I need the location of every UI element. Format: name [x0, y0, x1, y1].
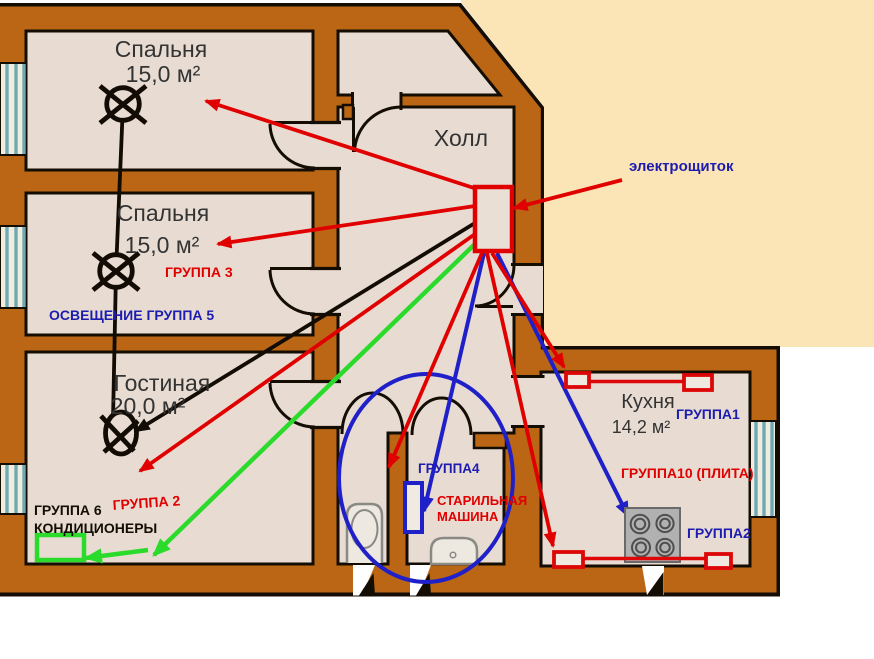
svg-text:Кухня: Кухня	[621, 391, 675, 413]
svg-text:СТАРИЛЬНАЯ: СТАРИЛЬНАЯ	[437, 493, 527, 508]
svg-text:20,0 м²: 20,0 м²	[111, 393, 186, 419]
svg-text:ГРУППА 6: ГРУППА 6	[34, 502, 102, 518]
svg-text:15,0 м²: 15,0 м²	[126, 61, 201, 87]
svg-text:14,2 м²: 14,2 м²	[612, 417, 670, 437]
svg-text:ГРУППА2: ГРУППА2	[687, 525, 751, 541]
svg-text:ГРУППА 3: ГРУППА 3	[165, 264, 233, 280]
svg-text:ОСВЕЩЕНИЕ ГРУППА 5: ОСВЕЩЕНИЕ ГРУППА 5	[49, 307, 214, 323]
svg-text:Спальня: Спальня	[117, 200, 209, 226]
svg-text:Спальня: Спальня	[115, 36, 207, 62]
svg-text:ГРУППА1: ГРУППА1	[676, 406, 740, 422]
svg-text:ГРУППА10 (ПЛИТА): ГРУППА10 (ПЛИТА)	[621, 465, 754, 481]
svg-text:КОНДИЦИОНЕРЫ: КОНДИЦИОНЕРЫ	[34, 520, 157, 536]
svg-text:ГРУППА4: ГРУППА4	[418, 461, 480, 476]
svg-text:Холл: Холл	[434, 125, 488, 151]
svg-text:МАШИНА: МАШИНА	[437, 509, 499, 524]
svg-text:электрощиток: электрощиток	[629, 158, 734, 175]
svg-text:15,0 м²: 15,0 м²	[125, 232, 200, 258]
